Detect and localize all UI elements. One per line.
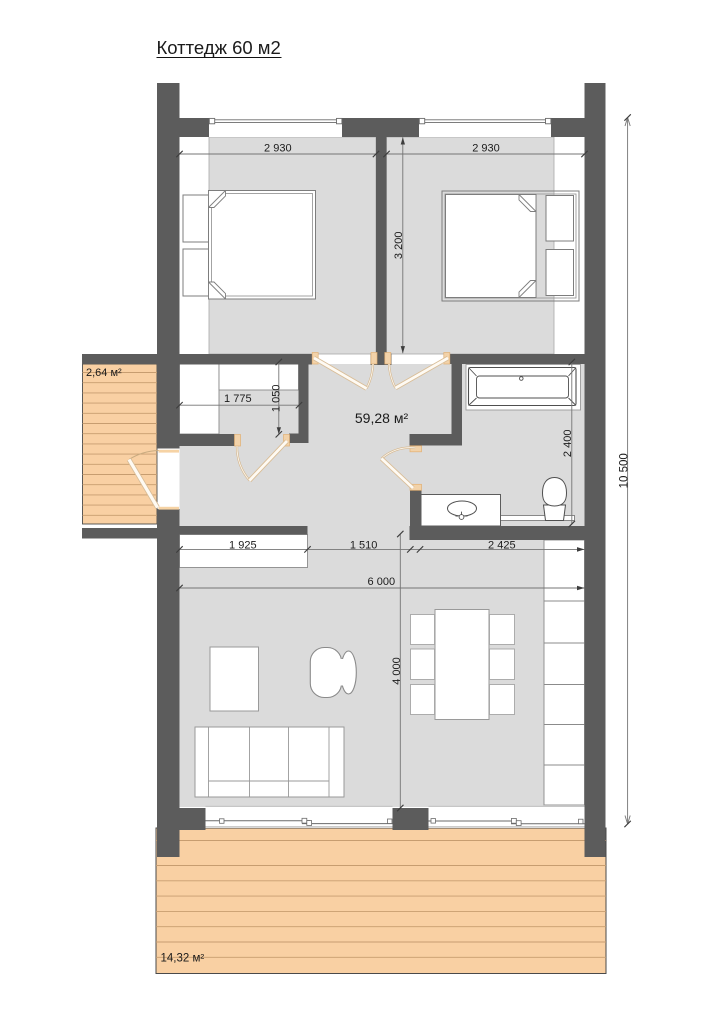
- svg-text:1 925: 1 925: [229, 539, 257, 551]
- svg-text:10 500: 10 500: [618, 453, 630, 488]
- svg-text:1 775: 1 775: [224, 393, 252, 405]
- svg-text:Коттедж 60 м2: Коттедж 60 м2: [157, 37, 281, 58]
- svg-text:2 930: 2 930: [472, 142, 500, 154]
- svg-text:2 930: 2 930: [264, 142, 292, 154]
- svg-text:2,64 м²: 2,64 м²: [86, 367, 122, 379]
- svg-text:3 200: 3 200: [393, 232, 405, 260]
- svg-text:4 000: 4 000: [391, 657, 403, 685]
- svg-text:2 425: 2 425: [488, 539, 516, 551]
- svg-text:1 510: 1 510: [350, 539, 378, 551]
- svg-text:2 400: 2 400: [562, 430, 574, 458]
- svg-text:14,32 м²: 14,32 м²: [161, 953, 205, 965]
- svg-text:59,28 м²: 59,28 м²: [355, 410, 409, 426]
- svg-text:1 050: 1 050: [270, 385, 282, 413]
- svg-text:6 000: 6 000: [368, 576, 396, 588]
